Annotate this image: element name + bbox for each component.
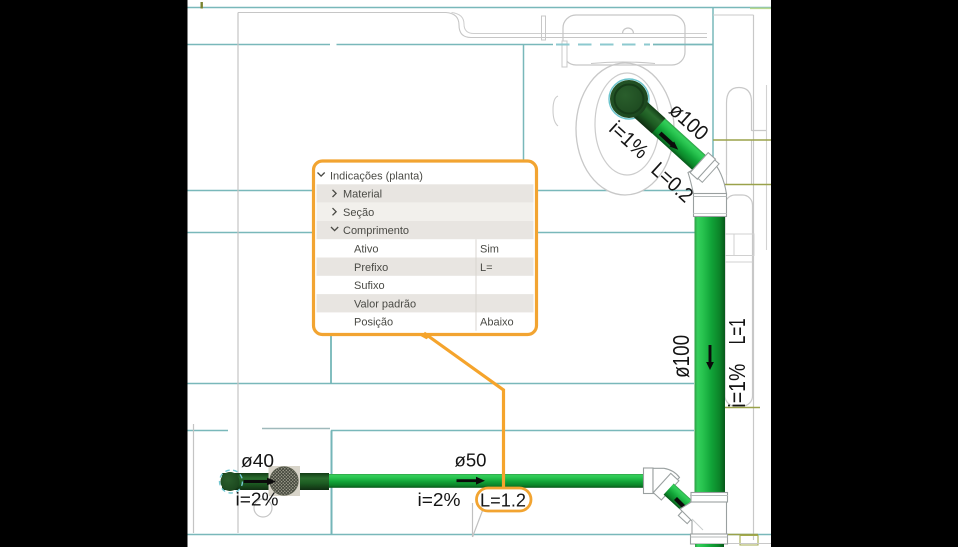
svg-text:Valor padrão: Valor padrão (354, 298, 416, 310)
svg-text:Sufixo: Sufixo (354, 280, 385, 292)
svg-text:Indicações (planta): Indicações (planta) (330, 170, 423, 182)
svg-text:Material: Material (343, 189, 382, 201)
svg-text:i=1%: i=1% (724, 364, 750, 408)
svg-text:L=1.2: L=1.2 (480, 490, 526, 511)
svg-text:ø50: ø50 (455, 450, 487, 471)
svg-text:ø100: ø100 (668, 335, 694, 378)
svg-text:Seção: Seção (343, 207, 374, 219)
svg-text:Abaixo: Abaixo (480, 317, 514, 329)
svg-text:Ativo: Ativo (354, 244, 378, 256)
svg-text:Sim: Sim (480, 244, 499, 256)
svg-text:L=1: L=1 (724, 318, 750, 344)
svg-text:ø40: ø40 (241, 450, 274, 471)
svg-text:Comprimento: Comprimento (343, 225, 409, 237)
svg-text:Posição: Posição (354, 317, 393, 329)
svg-text:i=2%: i=2% (418, 489, 461, 510)
svg-text:L=: L= (480, 262, 493, 274)
svg-text:Prefixo: Prefixo (354, 262, 388, 274)
svg-text:i=2%: i=2% (236, 489, 279, 510)
